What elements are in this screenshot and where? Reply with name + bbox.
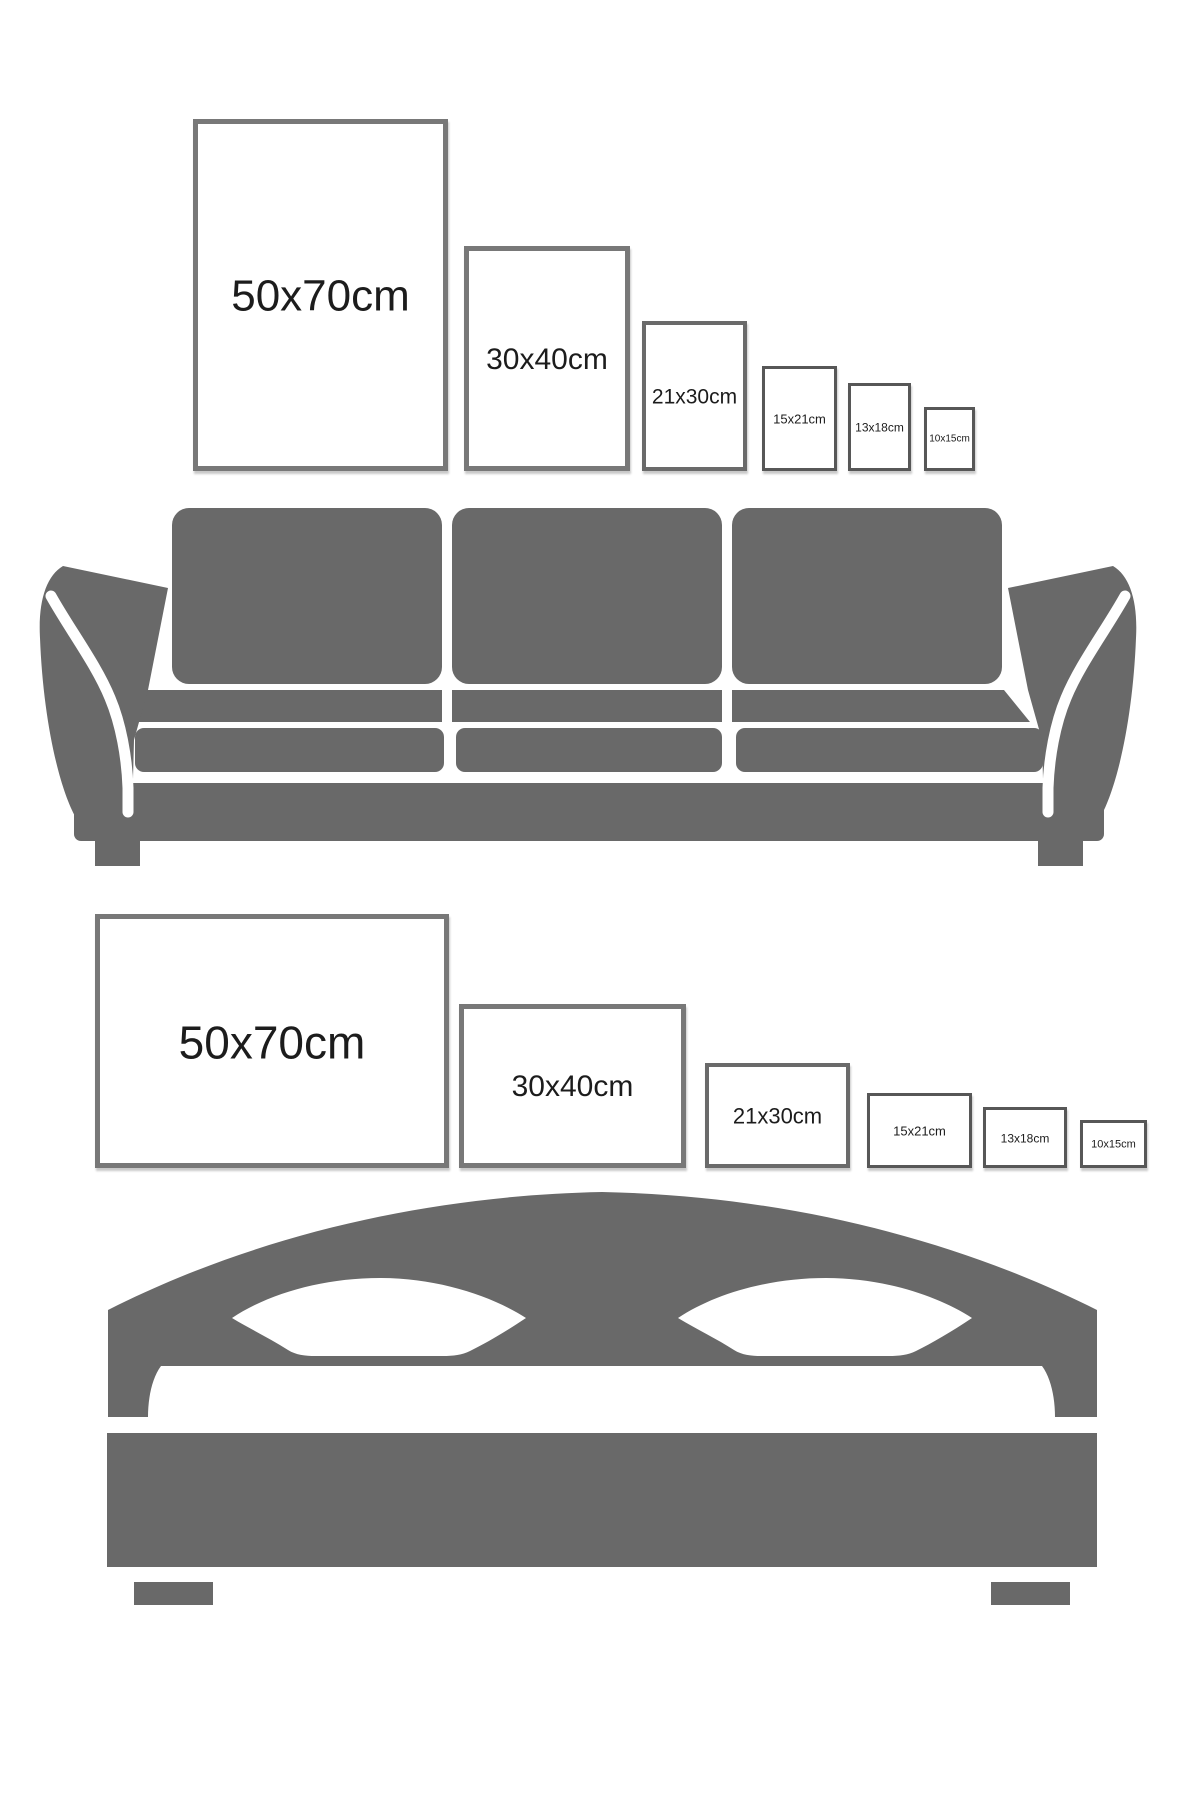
sofa-leg	[1038, 841, 1083, 866]
frame-size-label: 50x70cm	[179, 1019, 366, 1065]
sofa-seat-deck	[452, 690, 722, 722]
frame-size-label: 21x30cm	[652, 386, 737, 407]
sofa-seat-deck	[732, 690, 1030, 722]
frame-landscape-10x15: 10x15cm	[1080, 1120, 1147, 1168]
bed-leg	[991, 1582, 1070, 1605]
frame-size-label: 30x40cm	[486, 344, 608, 374]
sofa-seat-cushion	[456, 728, 722, 772]
sofa-back-cushion	[172, 508, 442, 684]
frame-landscape-13x18: 13x18cm	[983, 1107, 1067, 1168]
frame-size-label: 15x21cm	[773, 412, 826, 425]
frame-portrait-10x15: 10x15cm	[924, 407, 975, 471]
frame-size-label: 15x21cm	[893, 1124, 946, 1137]
frame-portrait-50x70: 50x70cm	[193, 119, 448, 471]
frame-size-label: 13x18cm	[1001, 1132, 1050, 1144]
frame-size-label: 13x18cm	[855, 421, 904, 433]
frame-size-label: 30x40cm	[512, 1072, 634, 1102]
sofa-icon	[40, 508, 1137, 866]
frame-portrait-15x21: 15x21cm	[762, 366, 837, 471]
poster-size-guide-infographic: 50x70cm 30x40cm 21x30cm 15x21cm 13x18cm …	[0, 0, 1200, 1800]
bed-leg	[134, 1582, 213, 1605]
bed-icon	[107, 1192, 1097, 1605]
bed-base	[107, 1433, 1097, 1567]
frame-size-label: 50x70cm	[231, 274, 410, 318]
frame-portrait-21x30: 21x30cm	[642, 321, 747, 471]
frame-size-label: 10x15cm	[929, 434, 970, 444]
frame-portrait-30x40: 30x40cm	[464, 246, 630, 471]
frame-size-label: 10x15cm	[1091, 1139, 1136, 1150]
sofa-back-cushion	[732, 508, 1002, 684]
frame-landscape-50x70: 50x70cm	[95, 914, 449, 1168]
frame-size-label: 21x30cm	[733, 1105, 822, 1127]
frame-landscape-30x40: 30x40cm	[459, 1004, 686, 1168]
frame-landscape-15x21: 15x21cm	[867, 1093, 972, 1168]
sofa-leg	[95, 841, 140, 866]
bed-headboard	[108, 1192, 1097, 1417]
sofa-base	[74, 783, 1104, 841]
sofa-seat-deck	[126, 690, 442, 722]
frame-landscape-21x30: 21x30cm	[705, 1063, 850, 1168]
frame-portrait-13x18: 13x18cm	[848, 383, 911, 471]
sofa-seat-cushion	[135, 728, 444, 772]
sofa-back-cushion	[452, 508, 722, 684]
sofa-seat-cushion	[736, 728, 1043, 772]
